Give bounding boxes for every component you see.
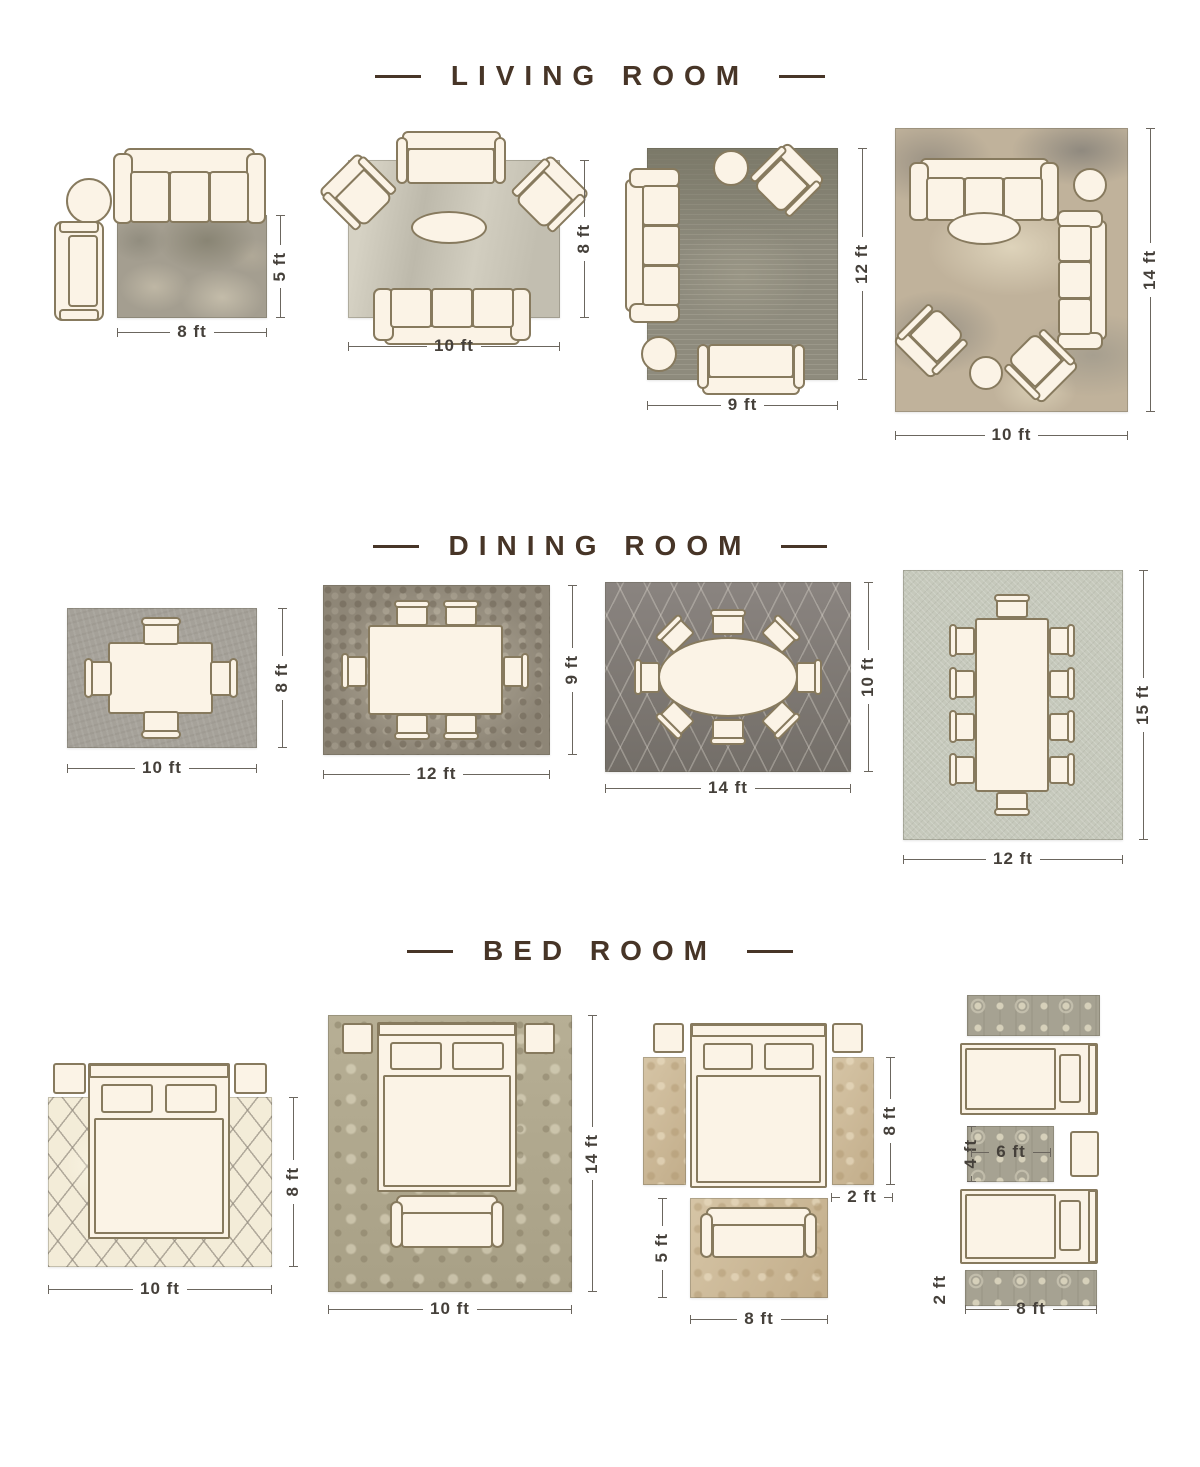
bed-headboard — [378, 1023, 516, 1036]
dining-chair — [84, 658, 114, 698]
width-dimension: 8 ft — [117, 323, 267, 341]
nightstand — [234, 1063, 267, 1094]
dining-chair — [710, 609, 746, 637]
sofa-cushion — [169, 171, 210, 223]
sofa — [1057, 210, 1107, 350]
dining-table — [975, 618, 1049, 792]
loveseat — [396, 131, 506, 185]
dining-chair — [949, 710, 977, 743]
rug-size-guide: LIVING ROOM 5 ft 8 ft — [0, 0, 1200, 1467]
dining-chair — [710, 717, 746, 745]
dimension-label: 2 ft — [930, 1268, 950, 1312]
title-dash — [373, 545, 419, 548]
sofa-back — [1090, 220, 1107, 340]
bed-pillow — [1059, 1200, 1082, 1251]
height-dimension: 15 ft — [1134, 570, 1152, 840]
nightstand — [53, 1063, 86, 1094]
runner-rug — [967, 995, 1100, 1036]
height-dimension: 14 ft — [1141, 128, 1159, 412]
dimension-label: 10 ft — [135, 758, 189, 778]
loveseat — [697, 343, 805, 395]
height-dimension: 8 ft — [273, 608, 291, 748]
dimension-label: 9 ft — [562, 648, 582, 692]
chair-back — [949, 667, 957, 700]
chair-back — [1067, 624, 1075, 657]
height-dimension: 12 ft — [853, 148, 871, 380]
sofa-cushion — [642, 225, 680, 266]
dimension-label: 14 ft — [701, 778, 755, 798]
section-title-bed-room: BED ROOM — [0, 935, 1200, 967]
sofa-cushion — [642, 185, 680, 226]
section-title-text: DINING ROOM — [449, 530, 752, 562]
bed-pillow — [101, 1084, 153, 1113]
bed-headboard — [1088, 1044, 1097, 1114]
width-dimension: 10 ft — [895, 426, 1128, 444]
chair-back — [394, 600, 430, 608]
height-dimension: 5 ft — [653, 1198, 671, 1298]
sofa-cushion — [472, 288, 514, 327]
dining-chair — [1047, 667, 1075, 700]
dining-table — [368, 625, 503, 715]
dimension-label: 9 ft — [721, 395, 765, 415]
living-room-layout-2: 8 ft 10 ft — [323, 125, 608, 373]
nightstand — [1070, 1131, 1099, 1177]
nightstand — [832, 1023, 863, 1053]
dining-chair — [443, 712, 479, 740]
chair-back — [443, 600, 479, 608]
dimension-label: 10 ft — [133, 1279, 187, 1299]
bench-arm — [700, 1213, 713, 1258]
chair-back — [710, 609, 746, 617]
dining-table — [108, 642, 213, 714]
runner-width-dimension: 2 ft — [931, 1268, 949, 1308]
height-dimension: 9 ft — [563, 585, 581, 755]
title-dash — [375, 75, 421, 78]
bed-pillow — [452, 1042, 504, 1070]
living-room-layout-3: 12 ft 9 ft — [613, 140, 883, 432]
dimension-label: 8 ft — [272, 656, 292, 700]
bed-body — [965, 1194, 1056, 1259]
title-dash — [781, 545, 827, 548]
height-dimension: 8 ft — [575, 160, 593, 318]
chair-back — [1067, 753, 1075, 786]
bed-headboard — [1088, 1190, 1097, 1263]
dining-chair — [394, 712, 430, 740]
loveseat-arm — [494, 137, 506, 183]
sofa-cushion — [1003, 177, 1043, 221]
width-dimension: 10 ft — [328, 1300, 572, 1318]
chair-back — [84, 658, 93, 698]
loveseat-cushion — [407, 148, 495, 184]
dimension-label: 10 ft — [427, 336, 481, 356]
nightstand — [653, 1023, 684, 1053]
dimension-label: 15 ft — [1133, 678, 1153, 732]
chair-back — [394, 732, 430, 740]
sofa — [625, 168, 681, 323]
title-dash — [747, 950, 793, 953]
sofa-cushion — [390, 288, 432, 327]
dimension-label: 12 ft — [986, 849, 1040, 869]
chair-back — [814, 659, 822, 695]
section-title-text: LIVING ROOM — [451, 60, 749, 92]
chair-back — [949, 753, 957, 786]
dining-chair — [1047, 753, 1075, 786]
dining-chair — [949, 667, 977, 700]
bench-arm — [59, 309, 100, 321]
dining-chair — [141, 709, 181, 739]
dimension-label: 8 ft — [1009, 1299, 1053, 1319]
dimension-label: 10 ft — [423, 1299, 477, 1319]
dining-chair — [994, 790, 1030, 816]
dining-chair — [501, 653, 529, 689]
bed-pillow — [703, 1043, 754, 1070]
bed-body — [965, 1048, 1056, 1111]
sofa-cushion — [926, 177, 966, 221]
width-dimension: 8 ft — [690, 1310, 828, 1328]
height-dimension: 5 ft — [271, 215, 289, 318]
chair-back — [949, 710, 957, 743]
chair-back — [710, 737, 746, 745]
dining-chair — [1047, 710, 1075, 743]
bench — [390, 1195, 504, 1249]
dining-chair — [949, 624, 977, 657]
title-dash — [779, 75, 825, 78]
bed-headboard — [691, 1024, 826, 1037]
chair-back — [341, 653, 349, 689]
dining-chair — [341, 653, 369, 689]
bed-pillow — [165, 1084, 217, 1113]
round-side-table — [66, 178, 112, 224]
oval-coffee-table — [947, 212, 1021, 245]
section-title-living-room: LIVING ROOM — [0, 60, 1200, 92]
chair-back — [949, 624, 957, 657]
bed — [960, 1189, 1098, 1264]
loveseat-cushion — [708, 344, 794, 378]
dining-chair — [1047, 624, 1075, 657]
loveseat-arm — [793, 344, 805, 389]
dining-room-layout-4: 15 ft 12 ft — [890, 562, 1155, 867]
oval-coffee-table — [411, 211, 487, 244]
dimension-label: 14 ft — [1140, 243, 1160, 297]
chair-back — [521, 653, 529, 689]
bench-cushion — [401, 1212, 492, 1248]
round-side-table — [1073, 168, 1107, 202]
dining-room-layout-1: 8 ft 10 ft — [55, 593, 300, 788]
chair-back — [141, 730, 181, 739]
small-rug-width-dimension: 6 ft — [971, 1143, 1051, 1161]
bed-room-layout-1: 8 ft 10 ft — [40, 1050, 305, 1305]
sofa-cushion — [431, 288, 473, 327]
bed-headboard — [89, 1064, 229, 1078]
dimension-label: 8 ft — [880, 1099, 900, 1143]
round-side-table — [969, 356, 1003, 390]
dining-chair — [949, 753, 977, 786]
bench-arm — [804, 1213, 817, 1258]
section-title-dining-room: DINING ROOM — [0, 530, 1200, 562]
dimension-label: 10 ft — [985, 425, 1039, 445]
width-dimension: 10 ft — [48, 1280, 272, 1298]
nightstand — [342, 1023, 373, 1054]
height-dimension: 10 ft — [859, 582, 877, 772]
loveseat-back — [702, 376, 799, 395]
bench-arm — [491, 1201, 504, 1247]
sofa-cushion — [130, 171, 171, 223]
dining-chair — [208, 658, 238, 698]
bed-body — [696, 1075, 821, 1183]
dimension-label: 8 ft — [574, 217, 594, 261]
bed-body — [94, 1118, 224, 1233]
dimension-label: 14 ft — [582, 1127, 602, 1181]
dimension-label: 8 ft — [170, 322, 214, 342]
width-dimension: 12 ft — [903, 850, 1123, 868]
dimension-label: 12 ft — [410, 764, 464, 784]
title-dash — [407, 950, 453, 953]
bed-room-layout-3: 8 ft 2 ft 5 ft 8 ft — [635, 1010, 905, 1335]
width-dimension: 10 ft — [348, 337, 560, 355]
bed-room-layout-4: 4 ft 6 ft 2 ft 8 ft — [915, 985, 1170, 1335]
width-dimension: 14 ft — [605, 779, 851, 797]
dimension-label: 5 ft — [652, 1226, 672, 1270]
sofa-cushion — [1058, 298, 1092, 335]
dining-chair — [141, 617, 181, 647]
nightstand — [524, 1023, 555, 1054]
bed — [690, 1023, 827, 1188]
bench-cushion — [68, 235, 98, 306]
bench-back — [706, 1207, 811, 1226]
bench-cushion — [712, 1224, 806, 1258]
chair-back — [229, 658, 238, 698]
bed-body — [383, 1075, 511, 1186]
bed-pillow — [764, 1043, 815, 1070]
dimension-label: 8 ft — [737, 1309, 781, 1329]
chair-back — [994, 594, 1030, 602]
dining-chair — [394, 600, 430, 628]
width-dimension: 10 ft — [67, 759, 257, 777]
bed-pillow — [1059, 1054, 1082, 1103]
sofa-cushion — [642, 265, 680, 306]
bed — [960, 1043, 1098, 1115]
bed — [88, 1063, 230, 1239]
chair-back — [141, 617, 181, 626]
runner-width-dimension: 2 ft — [831, 1188, 893, 1206]
dimension-label: 6 ft — [989, 1142, 1033, 1162]
dimension-label: 2 ft — [840, 1187, 884, 1207]
height-dimension: 14 ft — [583, 1015, 601, 1292]
bed-room-layout-2: 14 ft 10 ft — [315, 998, 600, 1328]
dining-room-layout-2: 9 ft 12 ft — [315, 573, 587, 793]
runner-rug — [643, 1057, 686, 1185]
dimension-label: 8 ft — [283, 1160, 303, 1204]
living-room-layout-4: 14 ft 10 ft — [885, 118, 1180, 443]
section-title-text: BED ROOM — [483, 935, 717, 967]
rug — [117, 215, 267, 318]
runner-length-dimension: 8 ft — [881, 1057, 899, 1185]
bed-pillow — [390, 1042, 442, 1070]
chair-back — [443, 732, 479, 740]
chaise-bench — [54, 221, 104, 321]
sofa — [113, 148, 266, 225]
bed — [377, 1022, 517, 1192]
sofa-cushion — [1058, 225, 1092, 262]
chair-back — [634, 659, 642, 695]
sofa-cushion — [209, 171, 250, 223]
height-dimension: 8 ft — [284, 1097, 302, 1267]
width-dimension: 12 ft — [323, 765, 550, 783]
width-dimension: 9 ft — [647, 396, 838, 414]
round-side-table — [641, 336, 677, 372]
dining-chair — [994, 594, 1030, 620]
bench — [700, 1207, 817, 1259]
runner-rug — [832, 1057, 874, 1185]
dining-room-layout-3: 10 ft 14 ft — [593, 573, 883, 803]
oval-dining-table — [658, 637, 798, 717]
dining-chair — [443, 600, 479, 628]
living-room-layout-1: 5 ft 8 ft — [50, 145, 305, 355]
dimension-label: 10 ft — [858, 650, 878, 704]
chair-back — [994, 808, 1030, 816]
dimension-label: 5 ft — [270, 245, 290, 289]
chair-back — [1067, 710, 1075, 743]
sofa-cushion — [1058, 261, 1092, 298]
sofa-arm — [246, 153, 266, 224]
width-dimension: 8 ft — [965, 1300, 1097, 1318]
dining-chair — [794, 659, 822, 695]
chair-back — [1067, 667, 1075, 700]
bench-arm — [59, 221, 100, 233]
dimension-label: 12 ft — [852, 237, 872, 291]
